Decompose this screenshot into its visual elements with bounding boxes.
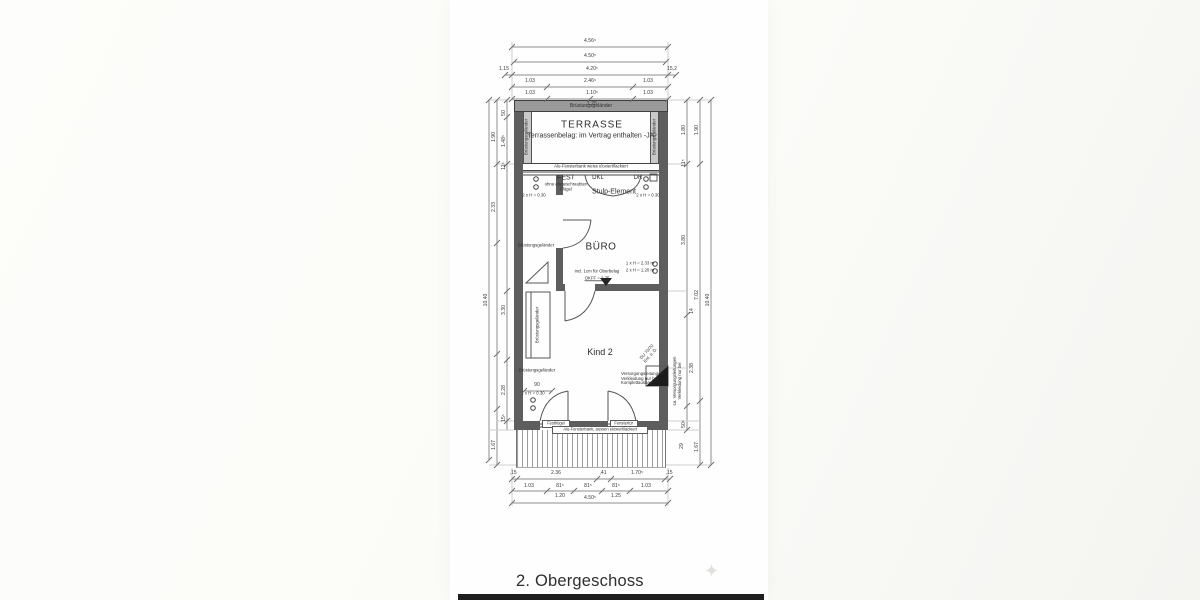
sill-bottom-label: Alu-Fensterbank, aussen eloxiert/lackier… [563, 428, 637, 432]
dim-top-5-sub: 1.25 [587, 101, 597, 106]
railing-void-label: Brüstungsgeländer [536, 307, 540, 343]
dim-bot-1c: ,41 [599, 470, 606, 475]
dim-left-e: 1.48⁵ [501, 135, 506, 147]
sockets-left-bottom: 2 x H = 0.30 [521, 392, 544, 396]
dim-top-5: 1.10⁵ [586, 90, 598, 95]
dim-top-3: 4.20⁵ [586, 66, 598, 71]
dim-right-i: 50⁵ [681, 420, 686, 428]
floor-note-line1: incl. 1cm für Oberbelag [575, 270, 620, 274]
dim-left-f: 11⁵ [501, 162, 506, 169]
dim-bot-2e: 1.03 [641, 483, 651, 488]
dim-bot-total: 4.50⁵ [584, 495, 596, 500]
dim-right-h: 2.38 [689, 363, 694, 373]
window-fixed-sub2: Flügel [560, 188, 572, 192]
dim-90: 90 [534, 382, 540, 387]
dim-right-g: 14 [689, 308, 694, 314]
dim-left-total: 10.40 [483, 294, 488, 307]
room-label-terrace: TERRASSE [561, 120, 623, 131]
dim-top-2: 4.50⁵ [584, 53, 596, 58]
supply-side-line2: Verkleidung nur bei [678, 357, 683, 406]
sill-bottom-tag: Alu-Fensterbank, aussen eloxiert/lackier… [552, 426, 648, 434]
railing-void-label2: Brüstungsgeländer [519, 369, 555, 373]
sockets-left-top: 2 x H = 0.30 [522, 194, 545, 198]
page-bottom-edge [458, 594, 764, 600]
dim-left-h: 2.28 [501, 385, 506, 395]
sparkle-icon: ✦ [704, 561, 719, 582]
dim-bot-2-sub1: 1.20 [555, 493, 565, 498]
supply-side-note: ca. Versorgungsleitungen Verkleidung nur… [673, 357, 683, 406]
window-dr-label: DR [634, 175, 643, 181]
dim-bot-1a: ,15 [509, 470, 516, 475]
dim-bot-2-sub2: 1.25 [611, 493, 621, 498]
dim-top-4-left: 1.03 [525, 78, 535, 83]
supply-note-line3: Komplettausbau [621, 381, 663, 386]
plan-geometry [0, 0, 1200, 600]
dim-bot-1b: 2.36 [551, 470, 561, 475]
dim-top-4-right: 1.03 [643, 78, 653, 83]
floor-plan-page: Brüstungsgeländer Brüstungsgeländer Brüs… [0, 0, 1200, 600]
dim-right-c: 1.67 [694, 442, 699, 452]
dim-right-a: 1.90 [694, 125, 699, 135]
sockets-right-top: 2 x H = 0.30 [636, 194, 659, 198]
dim-top-3-left: 1.15 [499, 66, 509, 71]
sill-top-label: Alu-Fensterbank weiss eloxiert/lackiert [554, 165, 628, 169]
dim-top-3-right: 15,2 [667, 66, 677, 71]
dim-bot-1e: ,15 [665, 470, 672, 475]
dim-right-d: 1.80 [681, 125, 686, 135]
dim-right-b: 7.02 [694, 290, 699, 300]
dim-right-e: 11⁵ [681, 159, 686, 166]
dim-left-i: 15⁵ [501, 414, 506, 422]
dim-bot-2d: 81⁵ [612, 483, 620, 488]
dim-bot-2b: 81⁵ [556, 483, 564, 488]
socket-height-2: 2 x H = 1.20 m [626, 269, 654, 273]
dim-left-c: 1.67 [491, 440, 496, 450]
socket-height-1: 1 x H = 2.33 m [626, 262, 654, 266]
room-label-office: BÜRO [586, 242, 617, 253]
dim-top-total: 4.56⁵ [584, 38, 596, 43]
dim-left-b: 2.33 [491, 202, 496, 212]
dim-left-d: 50 [501, 110, 506, 116]
window-fixed-sub1: ohne eingeschraubten [545, 183, 588, 187]
dim-bot-2c: 81⁵ [584, 483, 592, 488]
dim-left-g: 3.30 [501, 305, 506, 315]
window-dkl-label: DKL [592, 175, 604, 181]
dim-top-5-right: 1.03 [643, 90, 653, 95]
dim-right-j: 29 [679, 443, 684, 449]
dim-top-4: 2.46⁵ [584, 78, 596, 83]
floor-note-line2: OKFF = 2.75 [585, 277, 610, 281]
terrace-note: Terrassenbelag: im Vertrag enthalten -JA… [527, 133, 656, 140]
dim-top-5-left: 1.03 [525, 90, 535, 95]
floor-title: 2. Obergeschoss [516, 572, 644, 591]
room-label-child: Kind 2 [587, 347, 613, 357]
stulp-element-label: Stulp-Element [592, 189, 636, 196]
dim-left-a: 1.90 [491, 132, 496, 142]
window-fixed-label: FEST [557, 175, 575, 182]
supply-note: Versorgungsleitungen Verkleidung nur bei… [621, 372, 663, 386]
dim-bot-2a: 1.03 [524, 483, 534, 488]
dim-right-total: 10.40 [705, 294, 710, 307]
dim-bot-1d: 1.70⁵ [631, 470, 643, 475]
railing-office-label: Brüstungsgeländer [518, 244, 554, 248]
dim-right-f: 3.80 [681, 235, 686, 245]
